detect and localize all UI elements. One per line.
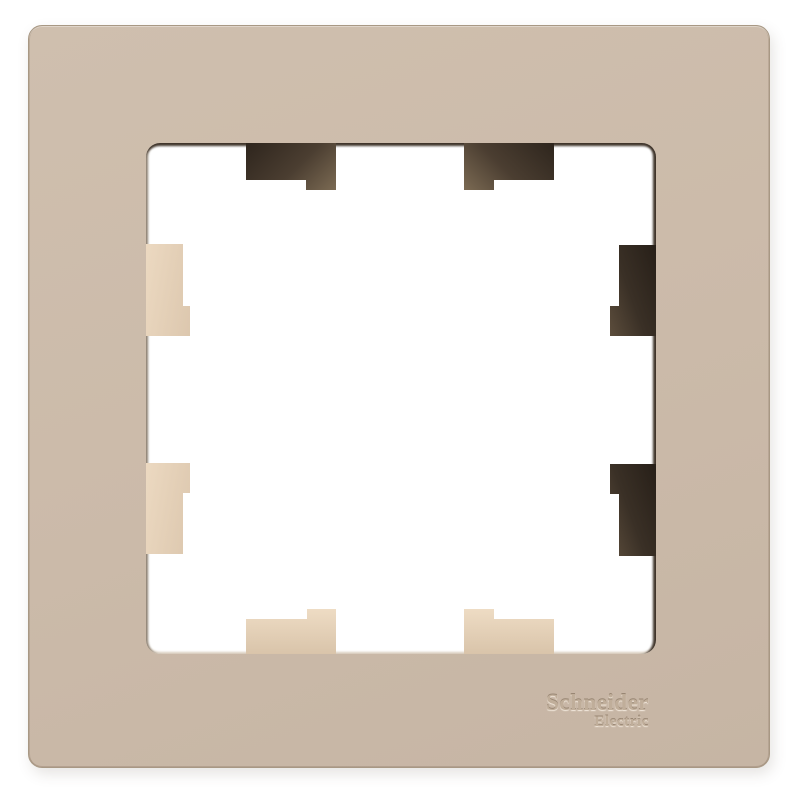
mounting-tab-left-bottom-icon <box>146 463 190 554</box>
mounting-tab-right-bottom-icon <box>610 464 656 556</box>
mounting-tab-right-top-icon <box>610 245 656 336</box>
frame-opening <box>146 143 656 654</box>
schneider-electric-logo: Schneider Electric <box>546 691 649 730</box>
product-photo: Schneider Electric <box>0 0 800 800</box>
wall-frame-plate: Schneider Electric <box>28 25 770 768</box>
mounting-tab-bottom-right-icon <box>464 609 554 654</box>
mounting-tab-left-top-icon <box>146 244 190 336</box>
brand-line-2: Electric <box>546 715 649 730</box>
mounting-tab-top-right-icon <box>464 143 554 190</box>
mounting-tab-top-left-icon <box>246 143 336 190</box>
mounting-tab-bottom-left-icon <box>246 609 336 654</box>
brand-line-1: Schneider <box>546 691 649 714</box>
